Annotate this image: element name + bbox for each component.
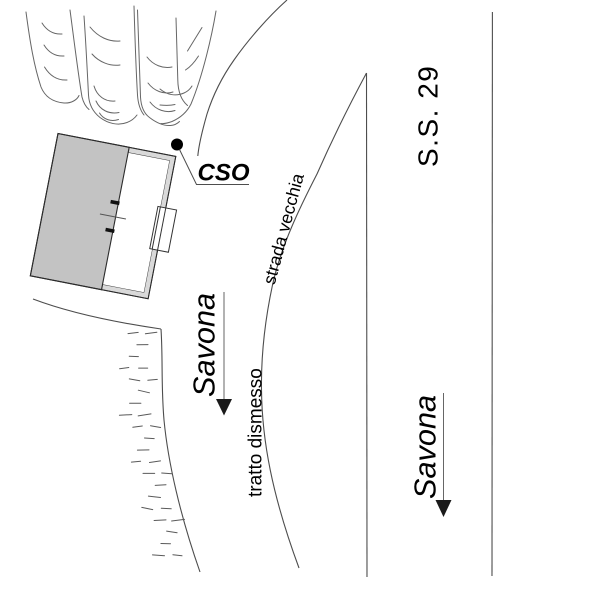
svg-text:S.S. 29: S.S. 29 [413, 65, 444, 167]
svg-text:tratto dismesso: tratto dismesso [246, 368, 267, 497]
svg-text:Savona: Savona [408, 395, 443, 499]
svg-text:CSO: CSO [198, 160, 250, 187]
svg-text:Savona: Savona [187, 293, 222, 397]
